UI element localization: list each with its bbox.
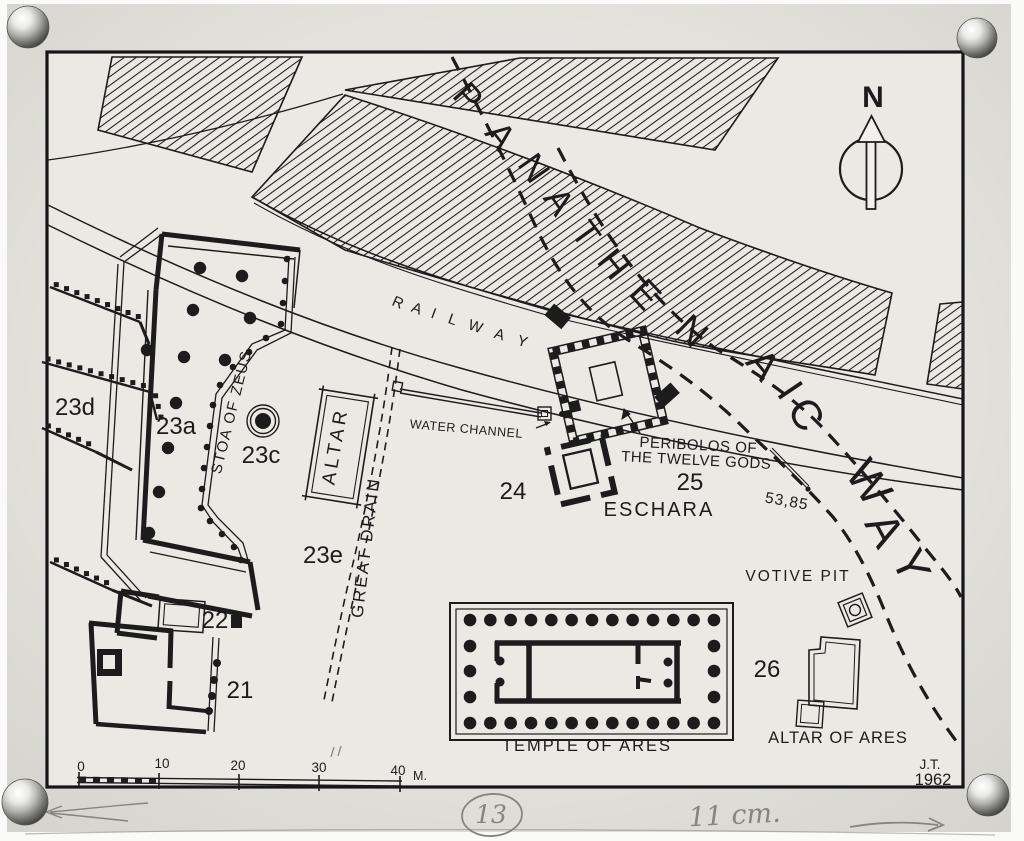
label-scale-40: 40: [390, 763, 405, 778]
marker-block-22: [231, 615, 242, 628]
label-votive-pit: VOTIVE PIT: [745, 568, 850, 585]
label-altar-of-ares: ALTAR OF ARES: [768, 729, 908, 747]
label-scale-20: 20: [230, 758, 245, 773]
label-num-24: 24: [500, 478, 527, 505]
label-num-21: 21: [227, 677, 254, 704]
pencil-sheet-number: 13: [475, 800, 507, 829]
label-scale-unit: M.: [413, 769, 427, 783]
label-credit-year: 1962: [915, 771, 952, 789]
label-eschara: ESCHARA: [604, 499, 715, 521]
label-num-23d: 23d: [55, 394, 95, 421]
pin-bottom-left: [2, 779, 48, 825]
label-credit-initials: J.T.: [919, 757, 940, 772]
label-scale-0: 0: [77, 759, 85, 774]
label-temple-of-ares: TEMPLE OF ARES: [502, 737, 672, 755]
label-north-letter: N: [862, 81, 884, 114]
site-plan: PANATHENAIC WAY: [0, 0, 1024, 841]
pin-top-right: [957, 18, 997, 58]
pencil-note: 11 cm.: [688, 798, 782, 834]
label-num-23c: 23c: [242, 442, 281, 469]
label-num-22: 22: [202, 607, 229, 634]
label-num-23a: 23a: [156, 413, 197, 440]
pin-bottom-right: [967, 774, 1009, 816]
label-num-25: 25: [677, 469, 704, 496]
pin-top-left: [7, 6, 49, 48]
label-scale-30: 30: [311, 760, 326, 775]
scanned-site-plan-photo: PANATHENAIC WAY: [0, 0, 1024, 841]
compass-arrow-shaft: [867, 133, 876, 209]
label-scale-10: 10: [154, 756, 169, 771]
label-num-23e: 23e: [303, 542, 343, 569]
label-num-26: 26: [754, 656, 781, 683]
